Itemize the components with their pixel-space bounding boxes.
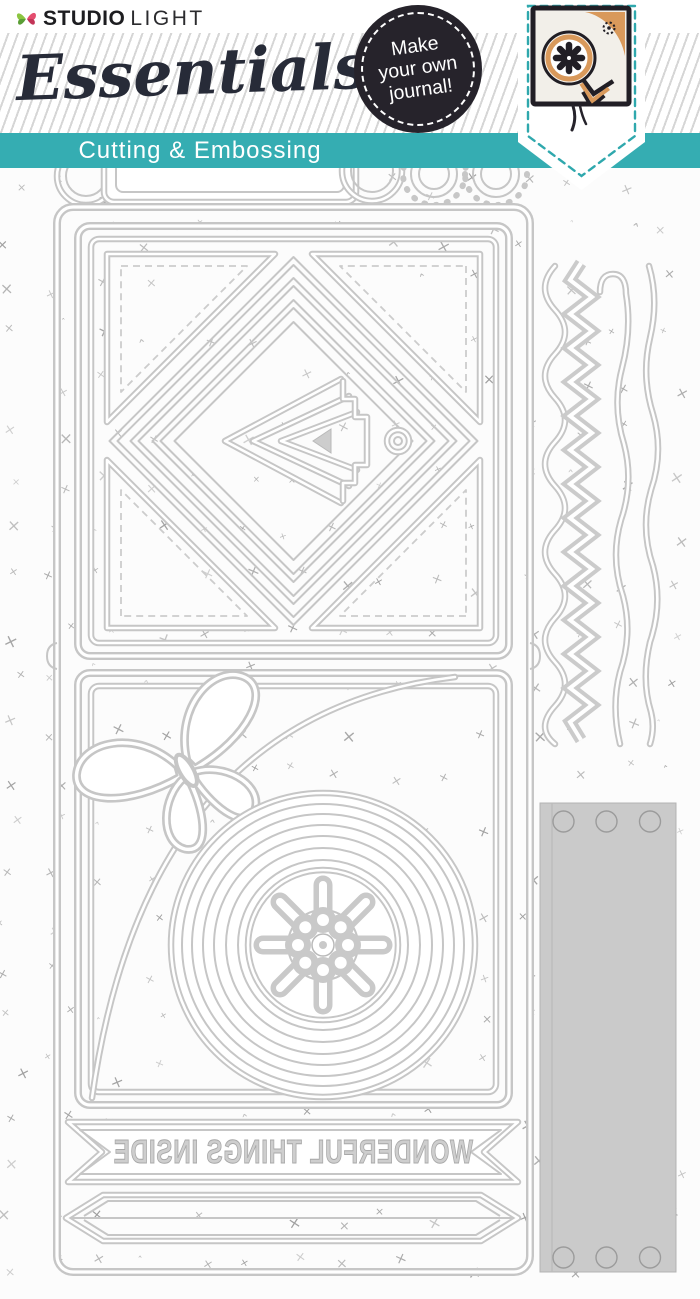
studio-light-logo: STUDIOLIGHT: [16, 7, 205, 31]
tag-strip-die: [540, 803, 676, 1272]
pennant-flag: [515, 0, 648, 200]
make-your-own-journal-badge: Make your own journal!: [354, 5, 482, 133]
butterfly-icon: [16, 10, 38, 28]
gear-icon: [543, 32, 595, 84]
banner-die: WONDERFUL THINGS INSIDE: [68, 1122, 518, 1182]
arrow-tree-die: [225, 379, 409, 503]
banner-die-text: WONDERFUL THINGS INSIDE: [113, 1133, 473, 1170]
corner-triangle-dies: [107, 254, 480, 628]
nested-diamond-dies: [110, 257, 478, 625]
product-packshot: ××××××××××××××××××××××××ˆˆ×××××ˆ××××ˆ×ˆ×…: [0, 0, 700, 1299]
brand-word-studio: STUDIO: [43, 7, 125, 31]
series-title: Essentials: [15, 30, 367, 115]
subtitle-text: Cutting & Embossing: [0, 133, 400, 168]
brand-word-light: LIGHT: [130, 7, 204, 31]
slat-die: [66, 1195, 518, 1241]
border-dies: [545, 263, 658, 744]
die-set-illustration: WONDERFUL THINGS INSIDE: [0, 168, 700, 1299]
circle-panel-die: [67, 664, 509, 1105]
diamond-panel-die: [78, 226, 509, 656]
top-partial-dies: [57, 168, 527, 205]
flower-gear-die: [263, 885, 383, 1005]
